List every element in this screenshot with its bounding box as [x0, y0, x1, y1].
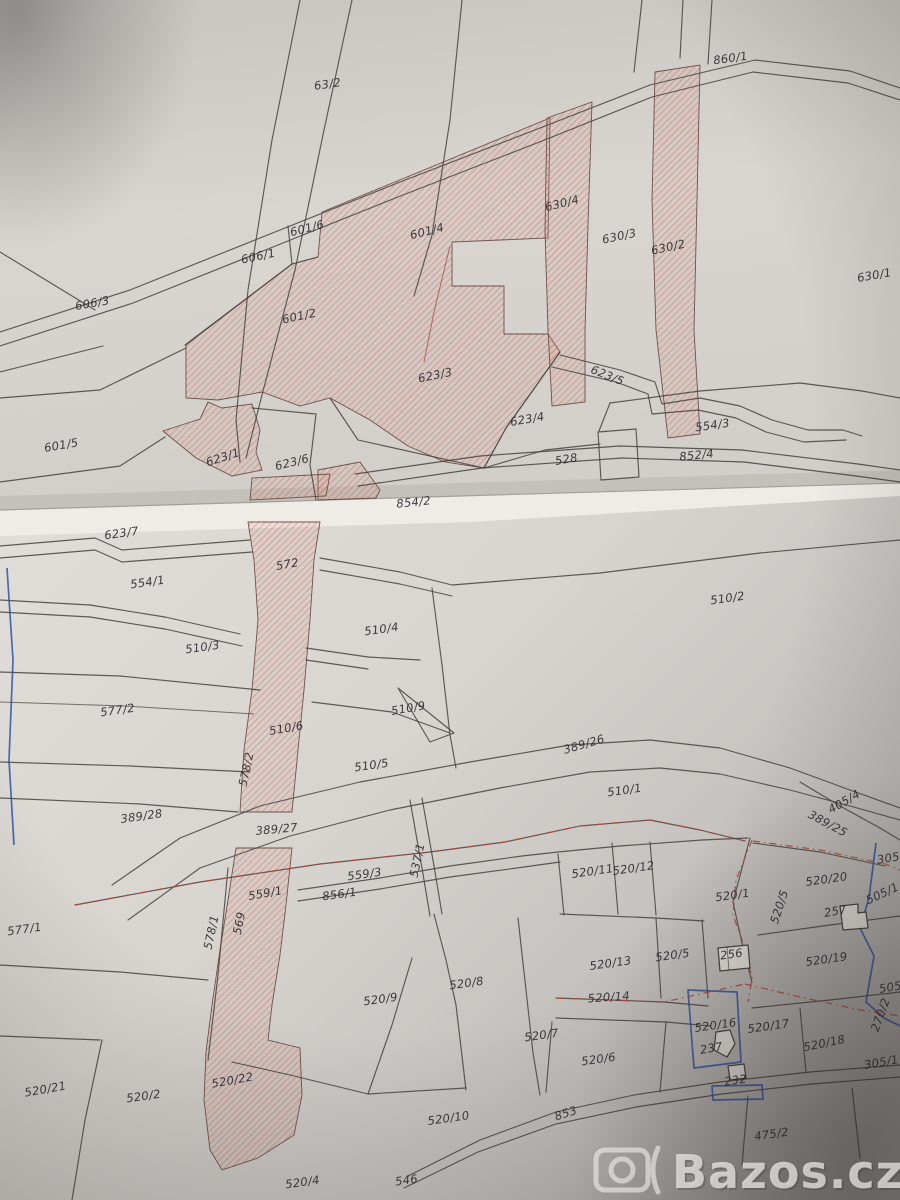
photo-vignette: [0, 0, 900, 1200]
photo: 63/2860/1601/6606/1601/4630/4630/3630/26…: [0, 0, 900, 1200]
cadastral-map: 63/2860/1601/6606/1601/4630/4630/3630/26…: [0, 0, 900, 1200]
watermark-text: Bazos.cz: [672, 1145, 900, 1199]
